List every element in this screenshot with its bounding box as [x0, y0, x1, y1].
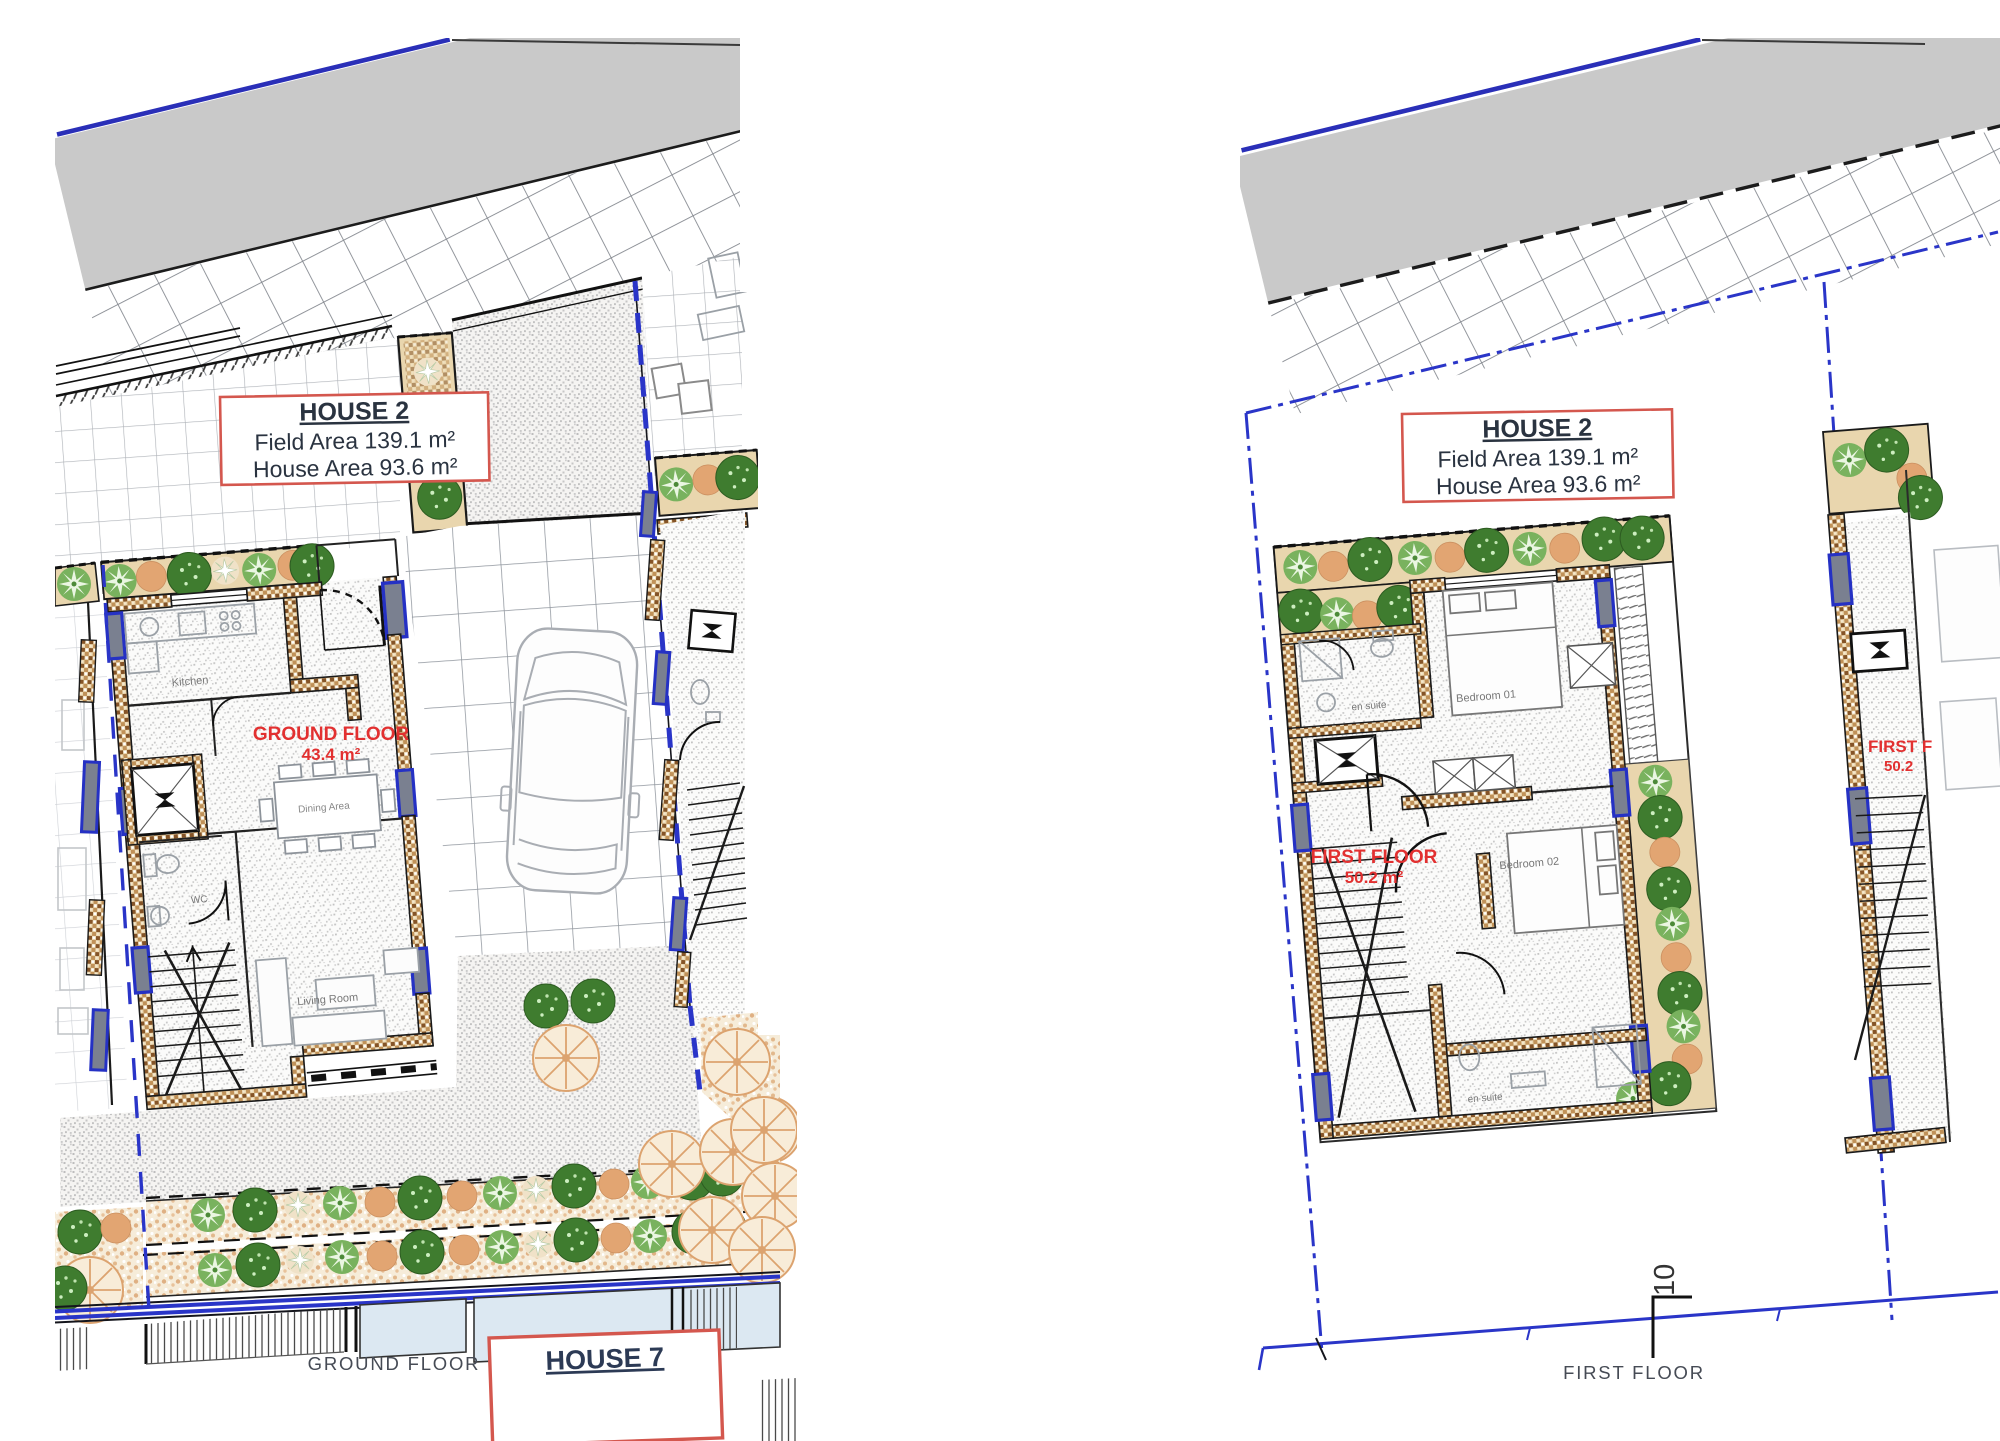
- svg-text:HOUSE 2: HOUSE 2: [1482, 414, 1592, 444]
- svg-text:50.2 m²: 50.2 m²: [1345, 868, 1404, 887]
- svg-text:HOUSE 2: HOUSE 2: [299, 397, 409, 427]
- svg-text:43.4 m²: 43.4 m²: [302, 745, 361, 764]
- svg-text:50.2: 50.2: [1884, 758, 1913, 775]
- svg-text:FIRST F: FIRST F: [1868, 737, 1932, 756]
- svg-text:House Area 93.6 m²: House Area 93.6 m²: [253, 453, 458, 483]
- svg-text:GROUND FLOOR: GROUND FLOOR: [308, 1353, 481, 1374]
- svg-text:10: 10: [1649, 1264, 1681, 1296]
- svg-text:Field Area 139.1 m²: Field Area 139.1 m²: [1437, 443, 1638, 473]
- svg-text:Field Area 139.1 m²: Field Area 139.1 m²: [254, 426, 455, 456]
- svg-text:GROUND FLOOR: GROUND FLOOR: [253, 724, 409, 745]
- svg-text:House Area 93.6 m²: House Area 93.6 m²: [1436, 470, 1641, 500]
- svg-text:FIRST FLOOR: FIRST FLOOR: [1311, 847, 1438, 868]
- svg-text:WC: WC: [191, 894, 208, 906]
- svg-text:FIRST FLOOR: FIRST FLOOR: [1563, 1362, 1705, 1383]
- svg-text:HOUSE 7: HOUSE 7: [545, 1342, 665, 1376]
